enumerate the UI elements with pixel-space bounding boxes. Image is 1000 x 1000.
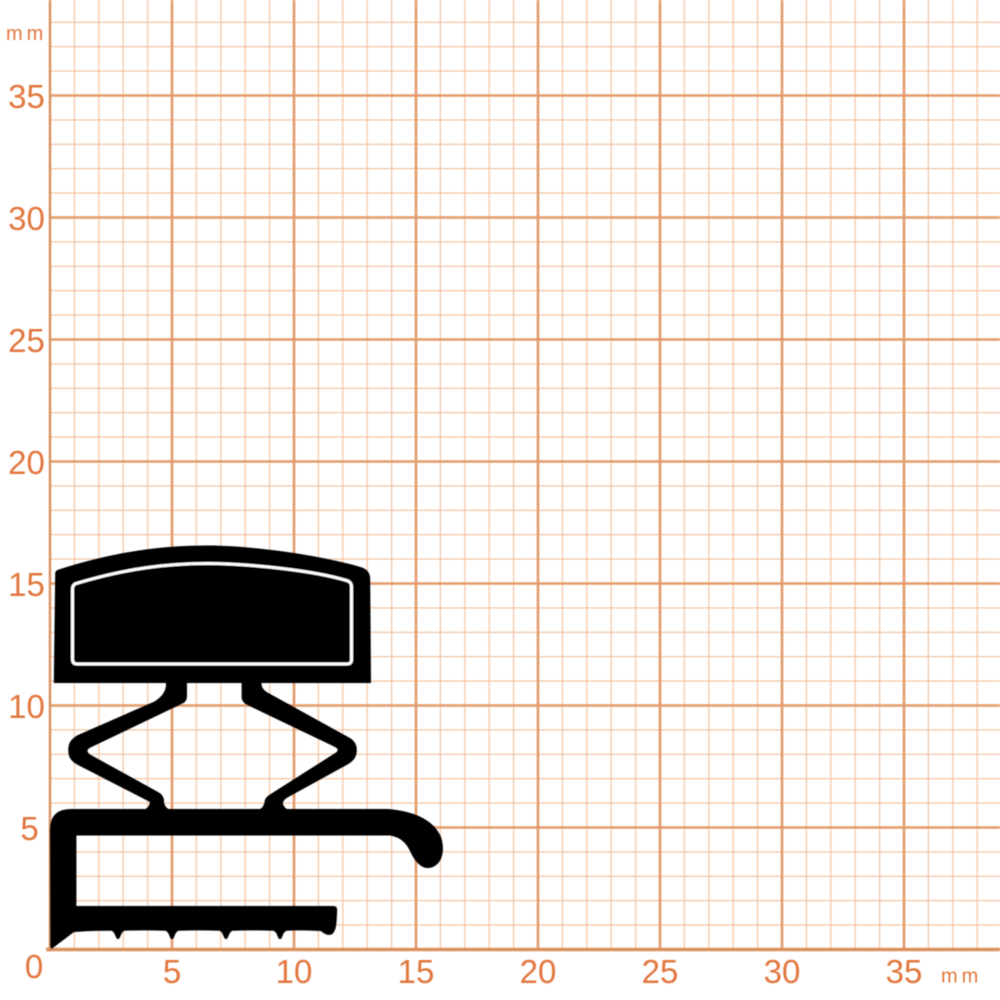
svg-text:35: 35 [886,953,923,990]
svg-text:5: 5 [163,953,181,990]
svg-text:15: 15 [8,566,45,603]
svg-text:5: 5 [20,810,38,847]
svg-text:mm: mm [941,966,982,988]
svg-text:25: 25 [8,322,45,359]
svg-text:15: 15 [398,953,435,990]
svg-text:35: 35 [8,78,45,115]
svg-text:30: 30 [764,953,801,990]
svg-text:10: 10 [8,688,45,725]
svg-text:0: 0 [25,948,43,985]
svg-text:25: 25 [642,953,679,990]
svg-text:10: 10 [276,953,313,990]
svg-text:30: 30 [8,200,45,237]
svg-text:mm: mm [6,23,47,45]
svg-text:20: 20 [8,444,45,481]
svg-text:20: 20 [520,953,557,990]
